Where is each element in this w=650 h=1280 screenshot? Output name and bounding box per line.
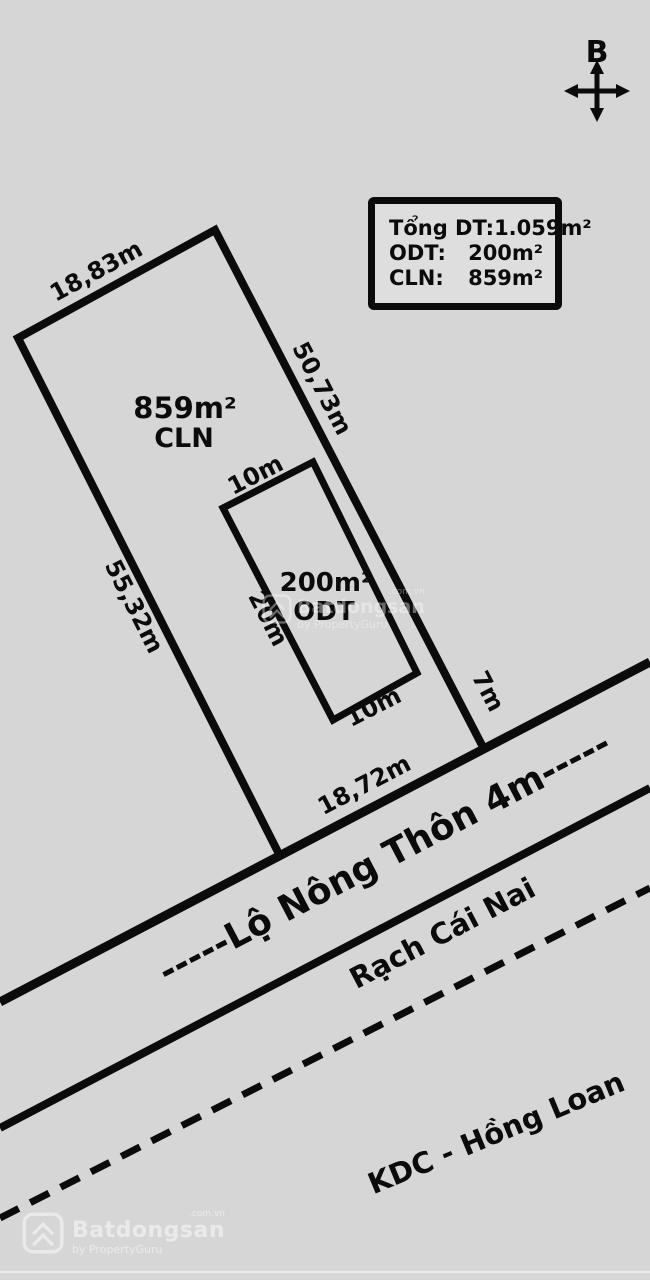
summary-value: 200m² bbox=[468, 241, 543, 266]
summary-label: ODT: bbox=[389, 241, 446, 266]
bottom-edge-divider bbox=[0, 1271, 650, 1273]
land-plot-sketch: B 18,83m 50,73m 55,32m 7m 18,72m 859m² C… bbox=[0, 0, 650, 1280]
inner-area-label: 200m² bbox=[280, 568, 373, 598]
main-plot-outline bbox=[18, 230, 484, 856]
north-label: B bbox=[586, 35, 609, 70]
dimension-label-right-lower: 7m bbox=[466, 666, 510, 716]
area-summary-box: Tổng DT: 1.059m² ODT: 200m² CLN: 859m² bbox=[368, 197, 562, 310]
summary-label: CLN: bbox=[389, 266, 444, 291]
summary-row-odt: ODT: 200m² bbox=[389, 241, 543, 266]
main-area-label: 859m² bbox=[133, 391, 236, 425]
summary-value: 859m² bbox=[468, 266, 543, 291]
neighborhood-label: KDC - Hồng Loan bbox=[363, 1065, 630, 1201]
summary-row-cln: CLN: 859m² bbox=[389, 266, 543, 291]
canal-dashed-line bbox=[0, 888, 650, 1218]
plot-drawing: B 18,83m 50,73m 55,32m 7m 18,72m 859m² C… bbox=[0, 0, 650, 1280]
inner-dimension-label-bottom: 10m bbox=[341, 681, 406, 732]
summary-label: Tổng DT: bbox=[389, 216, 494, 241]
road-bottom-line bbox=[0, 788, 650, 1128]
road-top-line bbox=[0, 662, 650, 1002]
summary-value: 1.059m² bbox=[494, 216, 592, 241]
inner-landtype-label: ODT bbox=[293, 597, 355, 627]
summary-row-total: Tổng DT: 1.059m² bbox=[389, 216, 543, 241]
main-landtype-label: CLN bbox=[154, 423, 214, 454]
